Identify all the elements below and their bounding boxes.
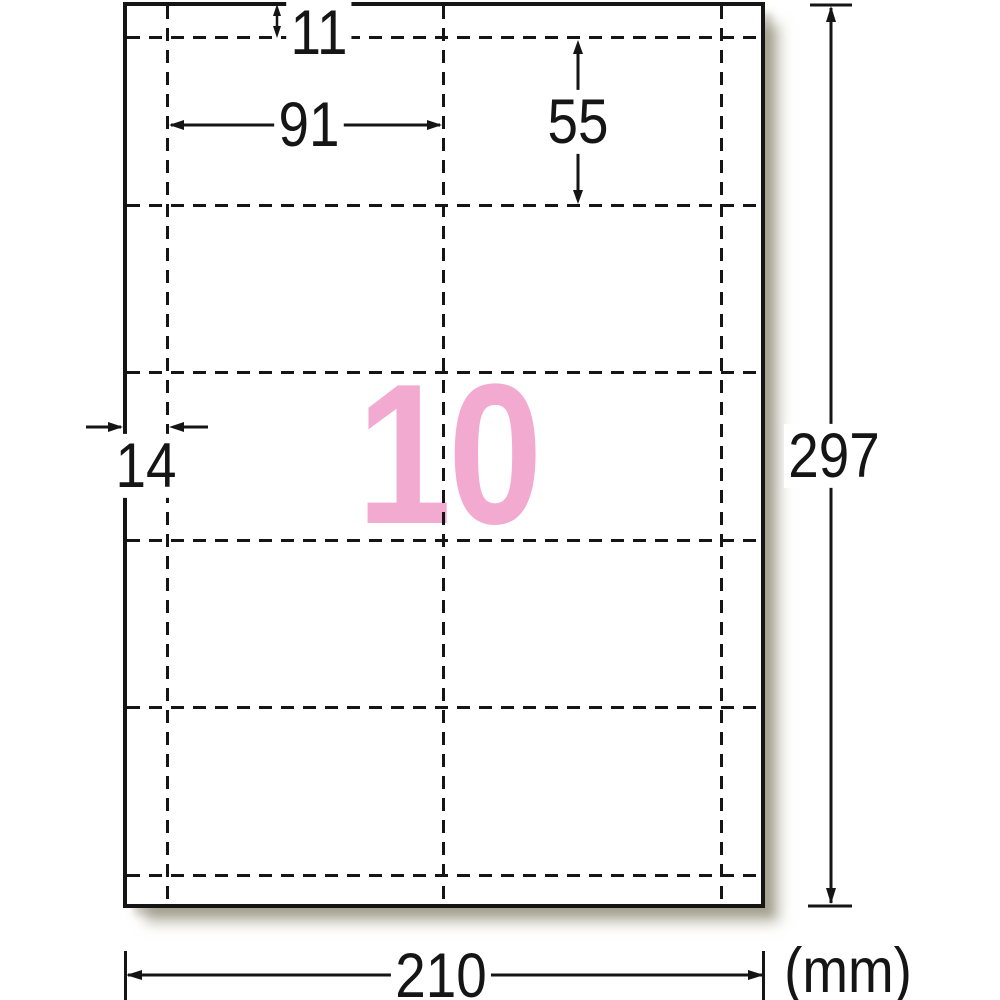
cut-line-horizontal-row-1: [127, 204, 763, 207]
card-width-value: 91: [274, 93, 344, 157]
side-margin-value: 14: [111, 434, 181, 498]
sheet-count: 10: [357, 355, 539, 555]
card-height-value: 55: [543, 90, 613, 154]
cut-line-horizontal-row-2: [127, 371, 763, 374]
top-margin-value: 11: [286, 1, 352, 65]
cut-line-horizontal-row-4: [127, 706, 763, 709]
sheet-width-value: 210: [391, 944, 491, 1000]
cut-line-horizontal-bottom-margin: [127, 874, 763, 877]
cut-line-horizontal-row-3: [127, 539, 763, 542]
cut-line-horizontal-top-margin: [127, 36, 763, 39]
sheet-height-value: 297: [784, 424, 884, 488]
cut-line-vertical-center: [442, 6, 445, 905]
diagram-stage: 11 91 55 14 297 210 (mm) 10: [0, 0, 1000, 1000]
cut-line-vertical-right-margin: [720, 6, 723, 905]
unit-label: (mm): [780, 939, 917, 1000]
